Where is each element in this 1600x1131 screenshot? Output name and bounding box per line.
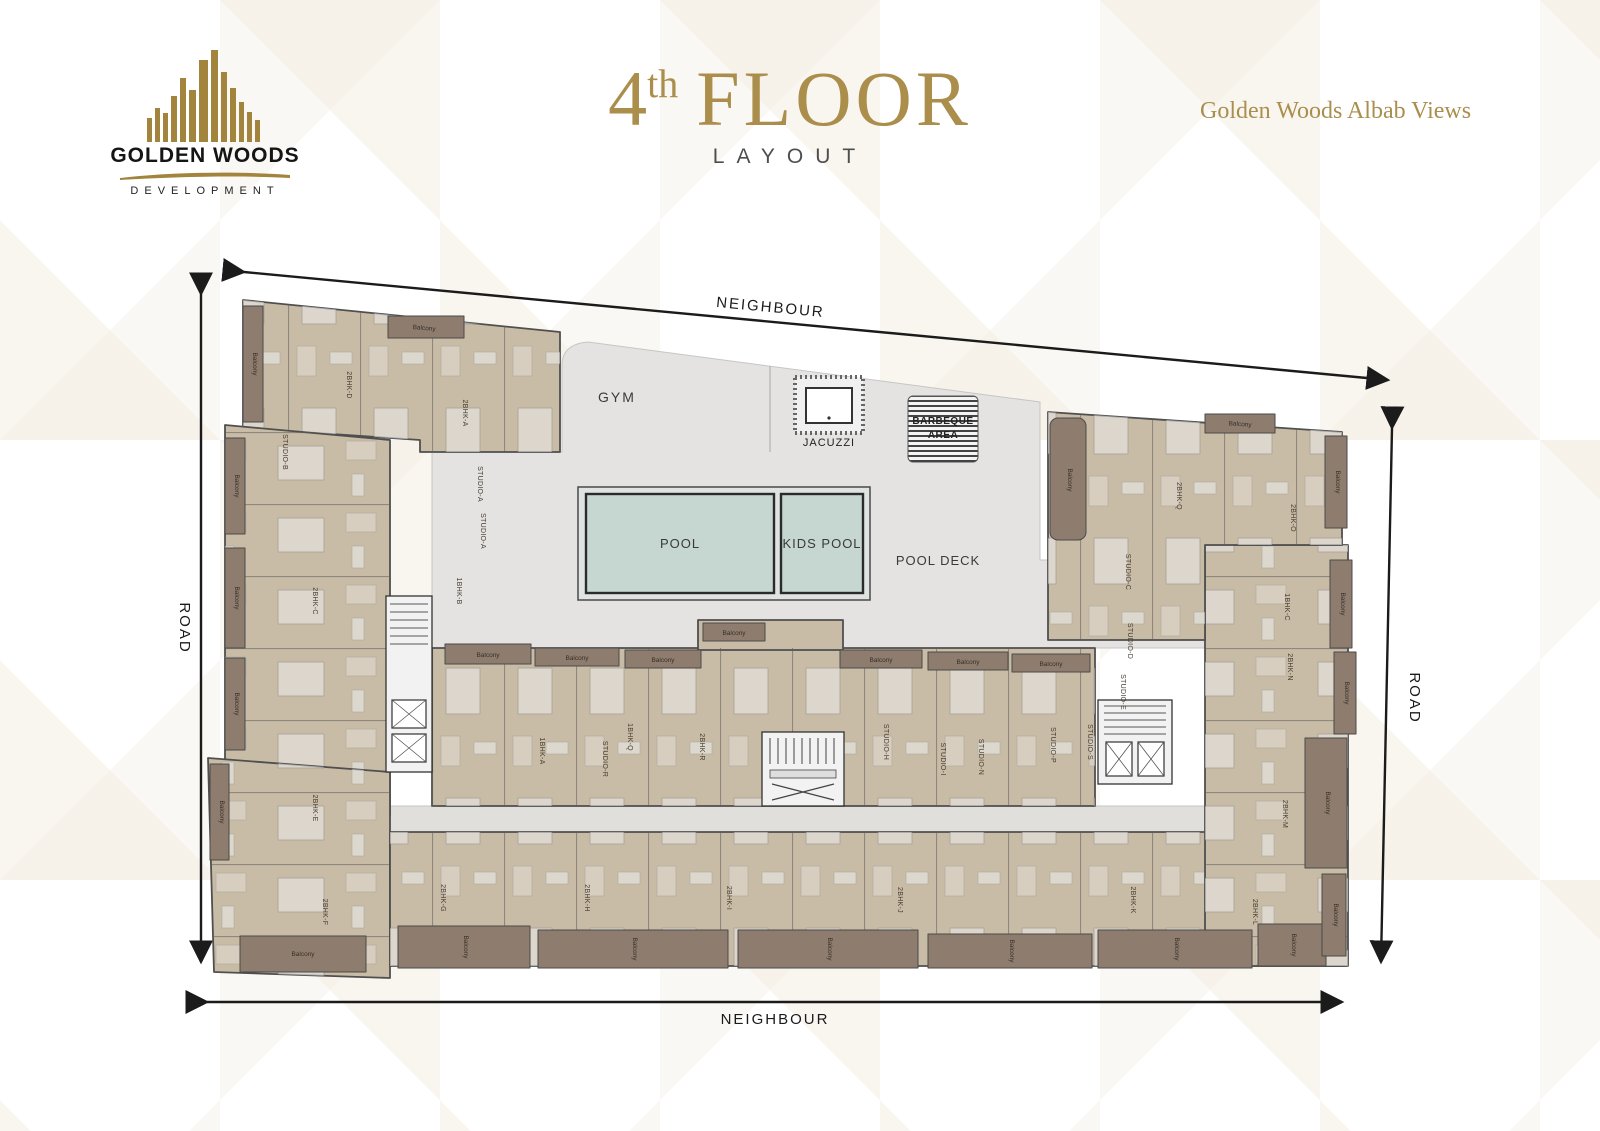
unit-label: 2BHK-C	[311, 587, 318, 614]
road-right-arrow	[1381, 428, 1392, 962]
balcony-label: Balcony	[218, 800, 225, 824]
balcony-label: Balcony	[869, 657, 893, 664]
balcony-label: Balcony	[1324, 791, 1331, 815]
unit-label: 2BHK-G	[439, 884, 446, 912]
balcony-label: Balcony	[1339, 592, 1346, 616]
unit-label: 2BHK-J	[896, 887, 903, 913]
unit-label: 1BHK-Q	[626, 723, 633, 751]
unit-label: STUDIO-A	[479, 513, 486, 549]
unit-label: STUDIO-H	[882, 724, 889, 760]
unit-label: STUDIO-I	[939, 742, 946, 775]
core-box	[762, 732, 844, 806]
lift-core-right	[1098, 700, 1172, 784]
unit-label: STUDIO-B	[281, 434, 288, 470]
road-right-label: ROAD	[1406, 672, 1423, 723]
barbeque-area: BARBEQUE AREA	[908, 396, 978, 462]
unit-label: 2BHK-R	[698, 733, 705, 760]
balcony-label: Balcony	[233, 474, 240, 498]
gym-label: GYM	[598, 389, 636, 405]
balcony-label: Balcony	[291, 951, 315, 958]
pool-deck-label: POOL DECK	[896, 553, 980, 568]
balcony-label: Balcony	[233, 586, 240, 610]
corridor	[390, 806, 1205, 834]
balcony-label: Balcony	[565, 655, 589, 662]
unit-label: STUDIO-C	[1124, 554, 1131, 590]
unit-label: STUDIO-A	[476, 466, 483, 502]
neighbour-bottom-label: NEIGHBOUR	[721, 1011, 830, 1028]
unit-label: STUDIO-S	[1086, 724, 1093, 760]
floor-plan-drawing: NEIGHBOUR NEIGHBOUR ROAD ROAD GYM POOL D…	[0, 0, 1600, 1131]
balcony-label: Balcony	[251, 352, 258, 376]
balcony-label: Balcony	[1173, 937, 1180, 961]
unit-label: STUDIO-P	[1049, 727, 1056, 763]
balcony-label: Balcony	[651, 657, 675, 664]
kids-pool-label: KIDS POOL	[782, 536, 861, 551]
unit-label: 2BHK-D	[345, 371, 352, 398]
barbeque-pergola	[908, 396, 978, 462]
unit-label: 2BHK-K	[1129, 886, 1136, 913]
balcony-label: Balcony	[462, 935, 469, 959]
balcony-label: Balcony	[1039, 661, 1063, 668]
balcony-label: Balcony	[722, 630, 746, 637]
unit-label: 1BHK-B	[455, 577, 462, 604]
unit-label: 1BHK-A	[538, 737, 545, 764]
unit-label: 2BHK-M	[1281, 800, 1288, 828]
road-left-label: ROAD	[176, 602, 193, 653]
balcony-label: Balcony	[233, 692, 240, 716]
barbeque-label-line1: BARBEQUE	[912, 416, 973, 427]
wing-left-rooms	[225, 425, 390, 815]
balcony-label: Balcony	[956, 659, 980, 666]
stair-core-left	[386, 596, 432, 772]
balcony-label: Balcony	[1334, 470, 1341, 494]
jacuzzi	[795, 377, 863, 433]
stair-landing	[770, 770, 836, 778]
unit-label: STUDIO-D	[1126, 623, 1133, 659]
unit-label: 1BHK-C	[1283, 593, 1290, 620]
pool-label: POOL	[660, 536, 700, 551]
unit-label: 2BHK-I	[725, 886, 732, 910]
unit-label: 2BHK-L	[1251, 899, 1258, 925]
jacuzzi-drain	[827, 416, 830, 419]
balcony-label: Balcony	[1343, 681, 1350, 705]
stair-core-center	[762, 732, 844, 806]
unit-label: 2BHK-A	[461, 399, 468, 426]
balcony-label: Balcony	[1066, 468, 1073, 492]
unit-label: 2BHK-F	[321, 899, 328, 926]
jacuzzi-label: JACUZZI	[803, 437, 855, 449]
balcony-label: Balcony	[476, 652, 500, 659]
unit-label: 2BHK-H	[583, 884, 590, 911]
balcony-label: Balcony	[631, 937, 638, 961]
balcony-label: Balcony	[1332, 903, 1339, 927]
barbeque-label-line2: AREA	[928, 430, 958, 441]
balcony-label: Balcony	[826, 937, 833, 961]
unit-label: STUDIO-N	[977, 739, 984, 775]
unit-label: STUDIO-E	[1119, 674, 1126, 710]
unit-label: STUDIO-R	[601, 741, 608, 777]
unit-label: 2BHK-O	[1289, 504, 1296, 532]
unit-label: 2BHK-E	[311, 794, 318, 821]
unit-label: 2BHK-N	[1286, 653, 1293, 680]
floor-plan-page: GOLDEN WOODS DEVELOPMENT 4thFLOOR LAYOUT…	[0, 0, 1600, 1131]
balcony-label: Balcony	[1290, 933, 1297, 957]
unit-label: 2BHK-Q	[1175, 482, 1182, 510]
balcony-label: Balcony	[1008, 939, 1015, 963]
